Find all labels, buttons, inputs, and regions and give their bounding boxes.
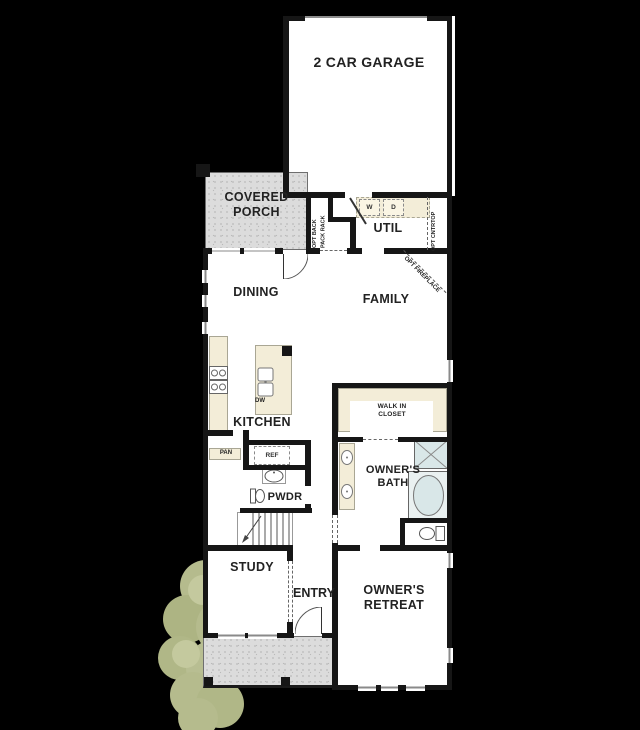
- wall-segment: [249, 440, 307, 445]
- window: [381, 684, 398, 691]
- room-label-dining: DINING: [210, 285, 302, 300]
- wall-segment: [338, 545, 360, 551]
- wall-segment: [447, 16, 452, 198]
- room-label-study: STUDY: [208, 560, 296, 575]
- pwdr-sink-icon: [262, 468, 286, 484]
- cased-opening: [320, 250, 347, 251]
- wall-segment: [372, 192, 452, 198]
- room-label-entry: ENTRY: [291, 586, 337, 601]
- pwdr-toilet-icon: [250, 486, 265, 506]
- garage-door: [305, 16, 427, 22]
- tree-blob: [172, 640, 200, 668]
- wall-segment: [275, 248, 283, 254]
- room-label-covered-porch: COVERED PORCH: [207, 190, 306, 220]
- wall-segment: [398, 437, 452, 442]
- porch-post: [204, 677, 213, 686]
- wall-segment: [338, 437, 363, 442]
- refrigerator-box: REF: [254, 446, 290, 465]
- wall-segment: [243, 430, 249, 470]
- wall-segment: [332, 383, 338, 515]
- wall-segment: [425, 685, 452, 690]
- window: [202, 322, 209, 334]
- wall-segment: [347, 248, 362, 254]
- label-line: PORCH: [207, 205, 306, 220]
- range-icon: [209, 366, 228, 394]
- tree-blob: [178, 698, 218, 730]
- island-post: [282, 346, 292, 356]
- dryer-box: D: [383, 199, 404, 216]
- window: [202, 295, 209, 307]
- porch-door-arc-icon: [283, 254, 308, 279]
- room-label-walk-in-closet: WALK IN CLOSET: [352, 403, 432, 419]
- wall-segment: [305, 440, 311, 486]
- room-label-kitchen: KITCHEN: [212, 415, 312, 430]
- floor-garage: [283, 16, 455, 196]
- window: [212, 248, 240, 254]
- window: [446, 360, 453, 382]
- wall-segment: [287, 622, 293, 638]
- wall-segment: [384, 248, 452, 254]
- room-label-owners-bath: OWNER'S BATH: [352, 464, 434, 490]
- label-line: RETREAT: [338, 598, 450, 613]
- floor-owners-retreat: [332, 540, 452, 690]
- wall-segment: [338, 383, 452, 388]
- label-line: COVERED: [207, 190, 306, 205]
- window: [406, 684, 425, 691]
- window: [202, 270, 209, 283]
- wall-segment: [380, 545, 452, 551]
- window: [218, 632, 245, 639]
- cased-opening: [337, 515, 338, 543]
- note-line: PACK RACK: [319, 198, 327, 248]
- wall-segment: [398, 685, 406, 690]
- cased-opening: [363, 439, 398, 440]
- window: [446, 553, 453, 568]
- label-line: CLOSET: [352, 411, 432, 419]
- wall-segment: [240, 508, 312, 513]
- window: [358, 684, 376, 691]
- room-label-family: FAMILY: [336, 292, 436, 307]
- wall-segment: [405, 518, 452, 523]
- front-porch-area: [203, 636, 333, 688]
- room-label-owners-retreat: OWNER'S RETREAT: [338, 583, 450, 613]
- floorplan: W D REF: [0, 0, 640, 730]
- wall-segment: [203, 633, 218, 638]
- island-sink-icon: [257, 367, 274, 397]
- wall-segment: [283, 16, 305, 21]
- wall-segment: [283, 16, 289, 198]
- label-line: BATH: [352, 477, 434, 490]
- window: [244, 248, 275, 254]
- wall-segment: [332, 543, 338, 690]
- front-door-arc-icon: [295, 607, 322, 634]
- window: [446, 648, 453, 663]
- wall-segment: [203, 545, 293, 551]
- note-line: OPT BACK: [311, 198, 319, 248]
- wall-segment: [203, 430, 233, 436]
- cased-opening: [332, 515, 333, 543]
- label-dishwasher: DW: [255, 398, 273, 405]
- label-pantry: PAN: [214, 450, 238, 457]
- label-line: OWNER'S: [338, 583, 450, 598]
- wall-segment: [287, 545, 293, 561]
- opt-back-pack-rack-note: OPT BACK PACK RACK: [311, 198, 328, 248]
- bath-toilet-icon: [417, 524, 446, 543]
- label-line: WALK IN: [352, 403, 432, 411]
- wall-segment: [196, 164, 210, 177]
- label-line: OWNER'S: [352, 464, 434, 477]
- room-label-garage: 2 CAR GARAGE: [289, 54, 449, 71]
- porch-post: [281, 677, 290, 686]
- room-label-util: UTIL: [348, 221, 428, 236]
- room-label-pwdr: PWDR: [264, 491, 306, 504]
- stairs-icon: [237, 512, 293, 546]
- opt-countertop-note: OPT CNTRTOP: [430, 197, 438, 251]
- window: [248, 632, 277, 639]
- wall-segment: [249, 465, 307, 470]
- wall-segment: [311, 248, 320, 254]
